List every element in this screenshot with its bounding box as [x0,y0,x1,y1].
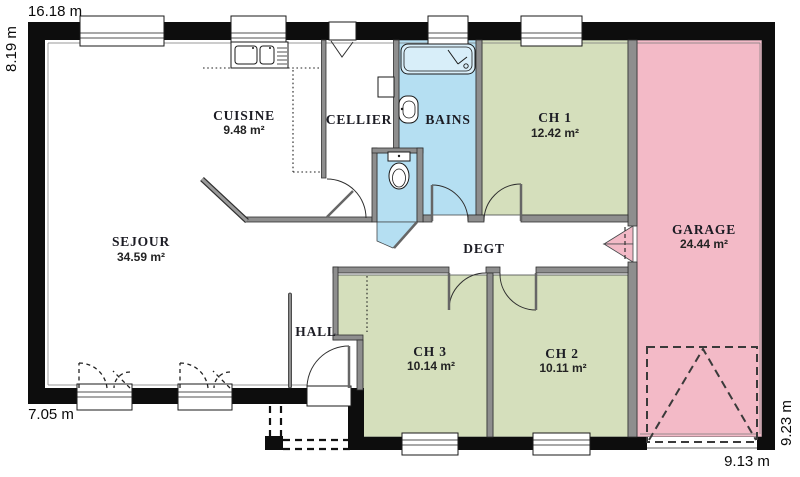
garage-door-opening [647,437,757,452]
room-area-ch2: 10.11 m² [539,361,586,375]
bathtub-icon [401,44,475,74]
toilet-icon [388,152,410,189]
room-label-sejour: SEJOUR [112,234,170,249]
room-label-hall: HALL [295,324,336,339]
window-ch2 [533,433,590,455]
room-area-ch3: 10.14 m² [407,359,455,373]
dimension-left: 8.19 m [3,26,20,72]
room-label-ch1: CH 1 [538,110,572,125]
room-label-bains: BAINS [425,112,470,127]
french-window-sejour-2 [178,363,232,410]
room-label-ch2: CH 2 [545,346,579,361]
window-bains [428,16,468,46]
bathroom-sink-icon [399,96,418,123]
room-label-cuisine: CUISINE [213,108,275,123]
hall-partition-wall [289,293,292,388]
cellier-interior-door [327,179,366,218]
window-ch1 [521,16,582,46]
dimension-top: 16.18 m [28,3,82,20]
room-area-garage: 24.44 m² [680,237,728,251]
room-area-cuisine: 9.48 m² [223,123,264,137]
room-area-ch1: 12.42 m² [531,126,579,140]
room-label-degt: DEGT [463,241,504,256]
room-label-ch3: CH 3 [413,344,447,359]
dimension-bottom-right: 9.13 m [724,453,770,470]
room-area-sejour: 34.59 m² [117,250,165,264]
kitchen-sink-icon [231,42,288,68]
dimension-right: 9.23 m [778,400,795,446]
porch-post [265,436,283,450]
room-label-cellier: CELLIER [326,112,392,127]
floor-plan-svg: CUISINE 9.48 m² CELLIER BAINS CH 1 12.42… [0,0,800,477]
french-window-sejour-1 [77,363,132,410]
dimension-bottom-left: 7.05 m [28,406,74,423]
entrance-porch [265,406,352,450]
window-sejour-top [80,16,164,46]
appliance-icon [378,77,394,97]
window-ch3 [402,433,458,455]
entrance-door [307,346,351,406]
room-label-garage: GARAGE [672,222,736,237]
cellier-exterior-door [329,22,356,57]
garage-corridor-door [604,226,633,262]
